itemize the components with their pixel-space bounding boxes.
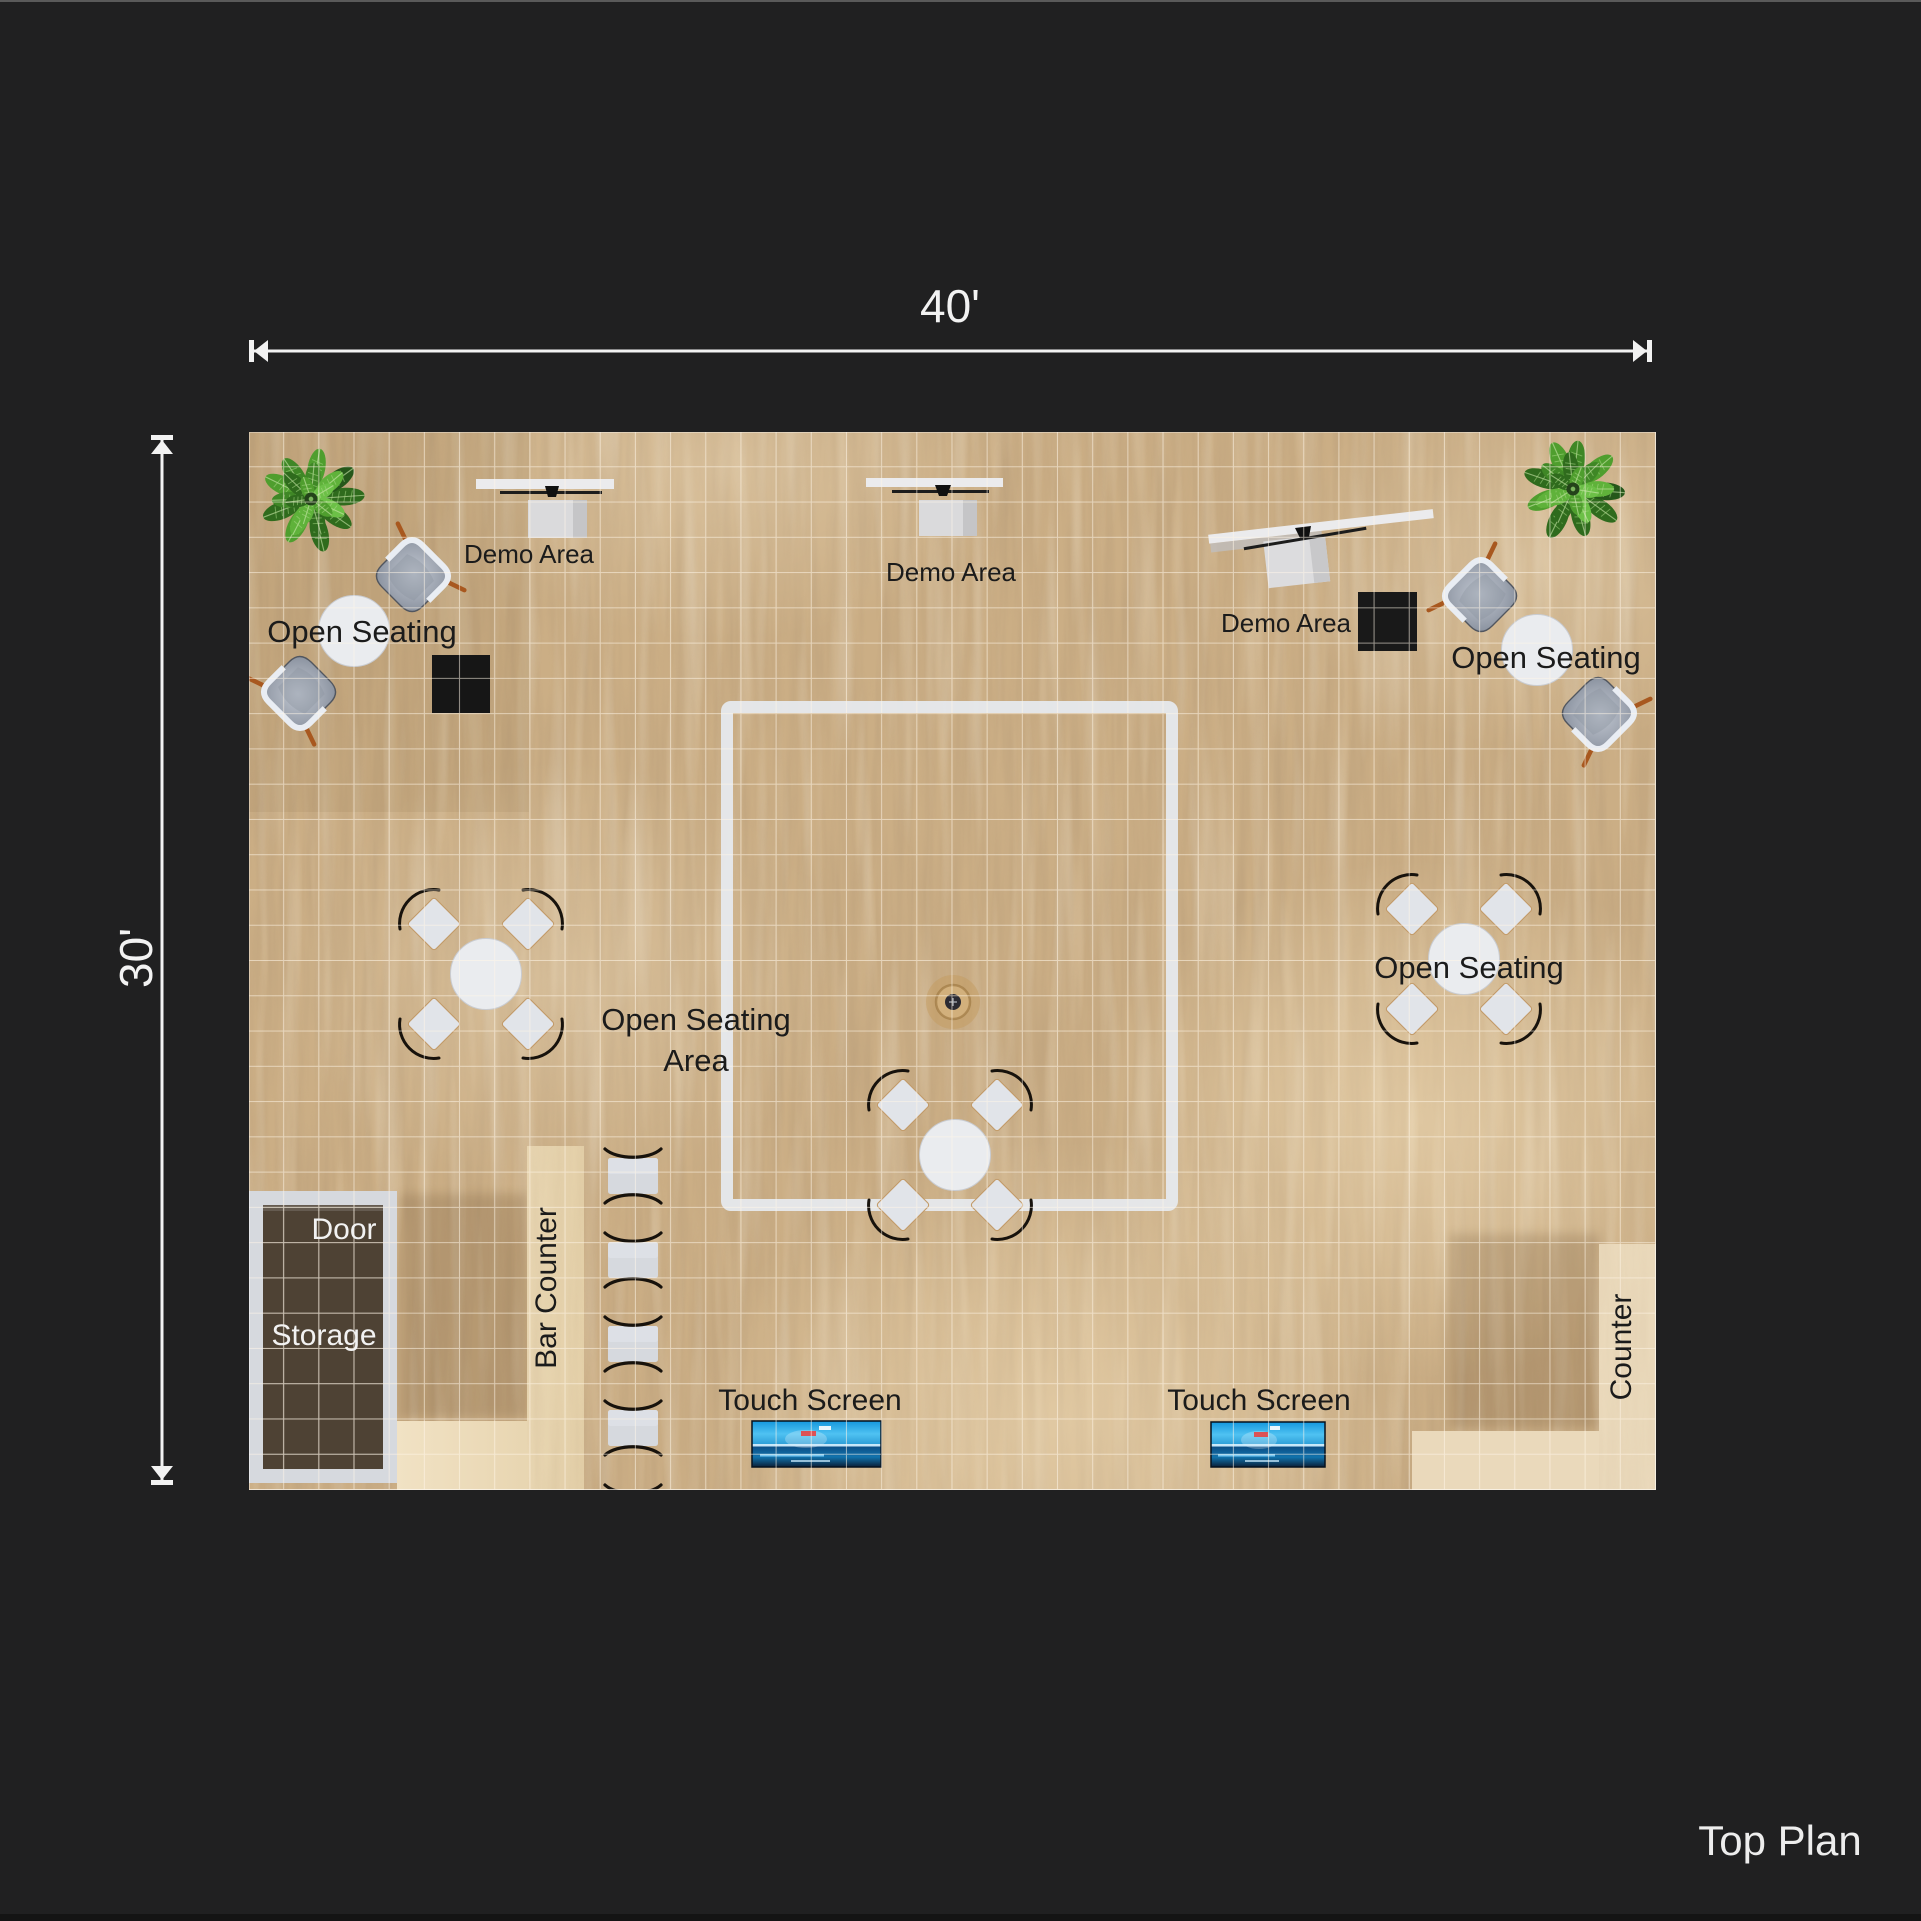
svg-text:Open Seating: Open Seating: [267, 614, 457, 649]
svg-text:Open Seating: Open Seating: [1451, 640, 1641, 675]
svg-text:Storage: Storage: [271, 1319, 376, 1352]
svg-text:Top Plan: Top Plan: [1698, 1817, 1861, 1864]
svg-text:Demo Area: Demo Area: [886, 557, 1017, 587]
svg-text:Area: Area: [663, 1043, 729, 1078]
svg-text:Door: Door: [311, 1213, 376, 1246]
svg-text:40': 40': [920, 280, 980, 332]
svg-text:Demo Area: Demo Area: [464, 539, 595, 569]
svg-text:Touch Screen: Touch Screen: [1167, 1384, 1350, 1417]
svg-text:Open Seating: Open Seating: [601, 1002, 791, 1037]
svg-text:Counter: Counter: [1605, 1294, 1638, 1401]
svg-text:Bar Counter: Bar Counter: [530, 1207, 563, 1369]
svg-text:Open Seating: Open Seating: [1374, 950, 1564, 985]
svg-text:30': 30': [110, 928, 162, 988]
svg-text:Touch Screen: Touch Screen: [718, 1384, 901, 1417]
svg-text:Demo Area: Demo Area: [1221, 608, 1352, 638]
